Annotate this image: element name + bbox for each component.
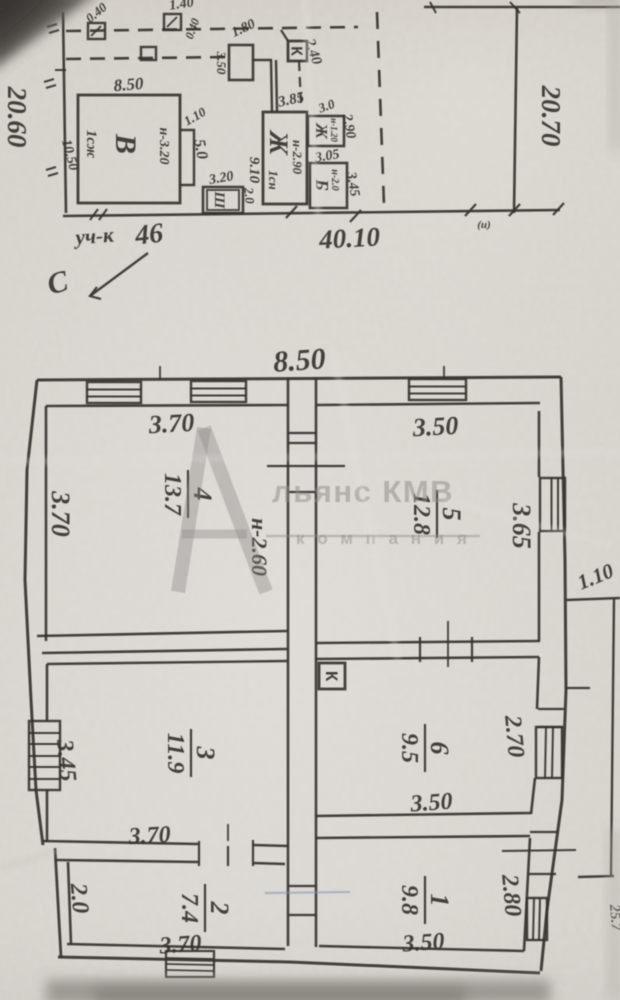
svg-text:2.0: 2.0 (241, 186, 257, 205)
svg-text:Ш: Ш (211, 191, 227, 210)
svg-text:В: В (109, 133, 142, 154)
svg-text:8.50: 8.50 (113, 74, 145, 96)
svg-text:К: К (322, 671, 341, 682)
svg-text:н-2.90: н-2.90 (290, 140, 305, 175)
svg-text:2.70: 2.70 (499, 713, 529, 758)
svg-text:13.7: 13.7 (159, 473, 185, 516)
svg-text:20.70: 20.70 (536, 85, 566, 147)
svg-text:(и): (и) (477, 219, 490, 231)
svg-text:9.5: 9.5 (396, 733, 422, 763)
svg-text:9.10: 9.10 (246, 157, 262, 184)
svg-text:1сн: 1сн (266, 170, 281, 190)
svg-text:2.0: 2.0 (65, 881, 94, 914)
svg-text:Ж: Ж (264, 129, 293, 156)
svg-text:н-3.20: н-3.20 (156, 128, 171, 165)
svg-text:5.0: 5.0 (190, 138, 210, 161)
svg-text:3.50: 3.50 (411, 411, 459, 442)
svg-text:1сж: 1сж (83, 130, 99, 158)
svg-text:2: 2 (205, 901, 234, 915)
svg-text:6: 6 (425, 742, 454, 755)
svg-text:40.10: 40.10 (317, 221, 381, 254)
svg-text:уч-к: уч-к (72, 223, 116, 250)
svg-text:20.60: 20.60 (2, 86, 32, 148)
svg-text:2.80: 2.80 (496, 872, 526, 917)
svg-text:46: 46 (133, 218, 165, 252)
svg-text:5: 5 (437, 508, 466, 521)
svg-text:3.70: 3.70 (46, 490, 75, 537)
svg-text:11.9: 11.9 (162, 733, 188, 774)
svg-text:8.50: 8.50 (272, 342, 327, 379)
svg-text:н-2.0: н-2.0 (329, 169, 340, 190)
svg-text:К: К (288, 46, 305, 56)
svg-text:7.4: 7.4 (176, 893, 202, 923)
svg-text:3.50: 3.50 (214, 51, 229, 75)
svg-text:1: 1 (425, 894, 454, 907)
svg-text:3.50: 3.50 (401, 929, 446, 958)
svg-text:к о м п а н и я: к о м п а н и я (296, 529, 471, 548)
svg-text:9.8: 9.8 (396, 885, 422, 915)
svg-text:н-1.20: н-1.20 (329, 118, 339, 142)
svg-text:3: 3 (191, 746, 220, 760)
svg-text:3.70: 3.70 (127, 822, 171, 850)
svg-text:3.70: 3.70 (147, 408, 195, 439)
